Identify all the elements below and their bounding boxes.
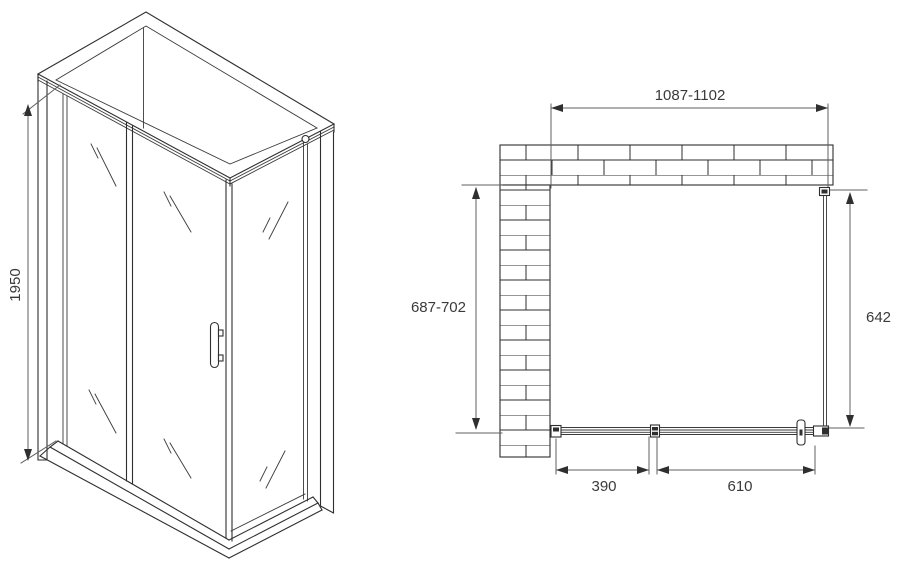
right-frame-post bbox=[321, 131, 334, 513]
front-fixed-glass-edge bbox=[63, 94, 67, 446]
fixed-segment-dimension-label: 390 bbox=[591, 478, 616, 495]
front-mullion bbox=[127, 122, 133, 484]
wall-bracket bbox=[820, 188, 830, 196]
width-dimension-label: 1087-1102 bbox=[655, 87, 726, 104]
drawing-canvas: 1950 1087-1102 687-702 bbox=[0, 0, 906, 564]
wall-profile-bracket-left bbox=[551, 426, 561, 438]
shower-enclosure-technical-drawing: 1950 1087-1102 687-702 bbox=[0, 0, 906, 564]
dimension-fixed-segment: 390 bbox=[556, 437, 649, 495]
height-dimension-label: 1950 bbox=[7, 268, 24, 301]
front-corner-post bbox=[226, 180, 232, 541]
door-handle-3d bbox=[211, 323, 224, 368]
door-segment-dimension-label: 610 bbox=[727, 478, 752, 495]
dimension-depth: 687-702 bbox=[411, 185, 502, 433]
corner-bracket bbox=[814, 426, 829, 436]
plan-view: 1087-1102 687-702 642 bbox=[411, 87, 891, 495]
wall-horizontal bbox=[500, 145, 833, 185]
glass-shine-marks bbox=[89, 144, 288, 488]
side-panel-dimension-label: 642 bbox=[866, 309, 891, 326]
dimension-side-panel: 642 bbox=[827, 190, 891, 428]
panel-connector bbox=[651, 425, 660, 437]
depth-dimension-label: 687-702 bbox=[411, 299, 466, 316]
left-frame-post bbox=[38, 74, 47, 460]
side-glass-panel-plan bbox=[824, 196, 827, 426]
base-tray bbox=[40, 441, 322, 558]
side-glass-panel-3d bbox=[231, 136, 309, 532]
top-frame bbox=[38, 12, 334, 186]
dimension-height: 1950 bbox=[7, 85, 60, 463]
door-handle-plan bbox=[797, 420, 805, 445]
dimension-door-segment: 610 bbox=[657, 437, 815, 495]
wall-vertical bbox=[500, 185, 550, 457]
perspective-view: 1950 bbox=[7, 12, 334, 558]
front-panel-assembly bbox=[551, 420, 829, 445]
